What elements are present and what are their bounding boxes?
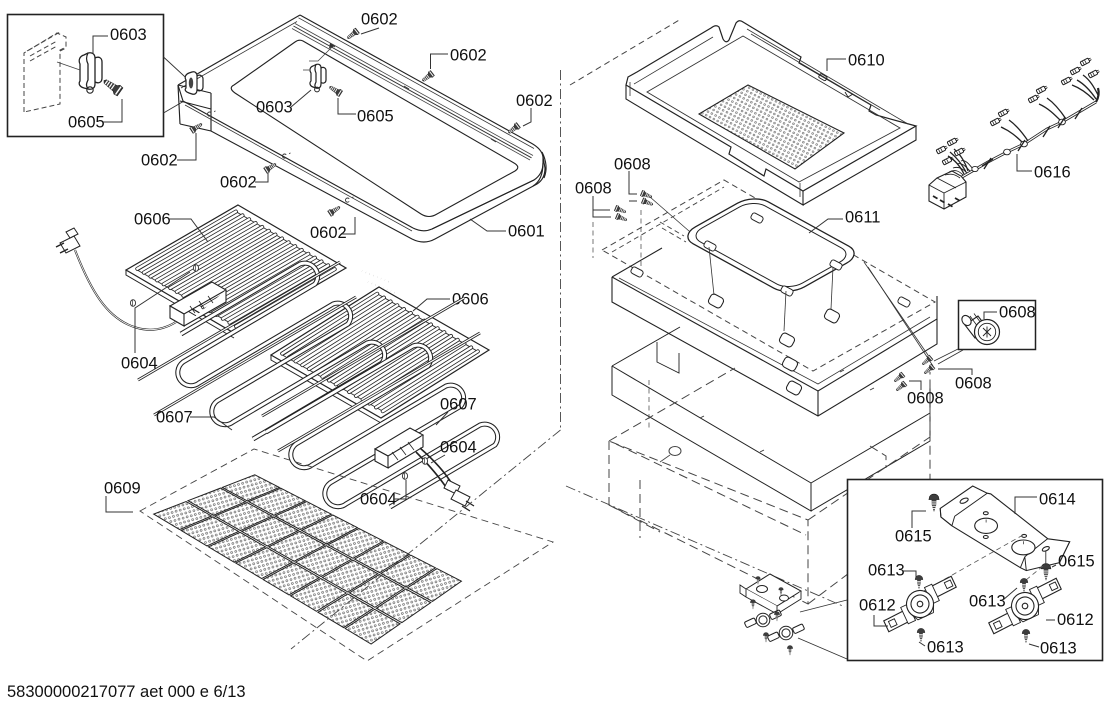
svg-text:0602: 0602: [220, 174, 257, 192]
svg-text:0612: 0612: [1057, 611, 1094, 629]
svg-text:0613: 0613: [868, 562, 905, 580]
svg-text:0613: 0613: [927, 639, 964, 657]
svg-text:0602: 0602: [310, 224, 347, 242]
svg-text:0614: 0614: [1039, 491, 1076, 509]
svg-text:0612: 0612: [859, 597, 896, 615]
svg-text:0613: 0613: [1040, 640, 1077, 658]
svg-text:0603: 0603: [110, 26, 147, 44]
svg-text:0610: 0610: [848, 52, 885, 70]
svg-text:0602: 0602: [516, 92, 553, 110]
svg-text:0601: 0601: [508, 223, 545, 241]
svg-text:0608: 0608: [575, 180, 612, 198]
svg-text:0602: 0602: [141, 152, 178, 170]
svg-text:0613: 0613: [969, 593, 1006, 611]
svg-text:0616: 0616: [1034, 164, 1071, 182]
svg-text:0606: 0606: [134, 211, 171, 229]
svg-text:0608: 0608: [955, 375, 992, 393]
svg-text:0602: 0602: [361, 11, 398, 29]
svg-text:0604: 0604: [360, 491, 397, 509]
svg-text:0607: 0607: [440, 396, 477, 414]
svg-text:0607: 0607: [156, 409, 193, 427]
svg-text:0609: 0609: [104, 480, 141, 498]
svg-text:0615: 0615: [1058, 553, 1095, 571]
svg-text:0602: 0602: [450, 47, 487, 65]
svg-text:0615: 0615: [895, 528, 932, 546]
svg-text:0605: 0605: [68, 114, 105, 132]
svg-text:0606: 0606: [452, 291, 489, 309]
svg-text:0603: 0603: [256, 99, 293, 117]
svg-text:0604: 0604: [440, 439, 477, 457]
svg-text:0608: 0608: [907, 390, 944, 408]
svg-text:0608: 0608: [614, 156, 651, 174]
svg-text:0608: 0608: [999, 304, 1036, 322]
svg-text:0604: 0604: [121, 355, 158, 373]
svg-text:0605: 0605: [357, 108, 394, 126]
svg-text:58300000217077 aet 000 e 6/13: 58300000217077 aet 000 e 6/13: [7, 683, 246, 701]
svg-text:0611: 0611: [845, 209, 880, 227]
